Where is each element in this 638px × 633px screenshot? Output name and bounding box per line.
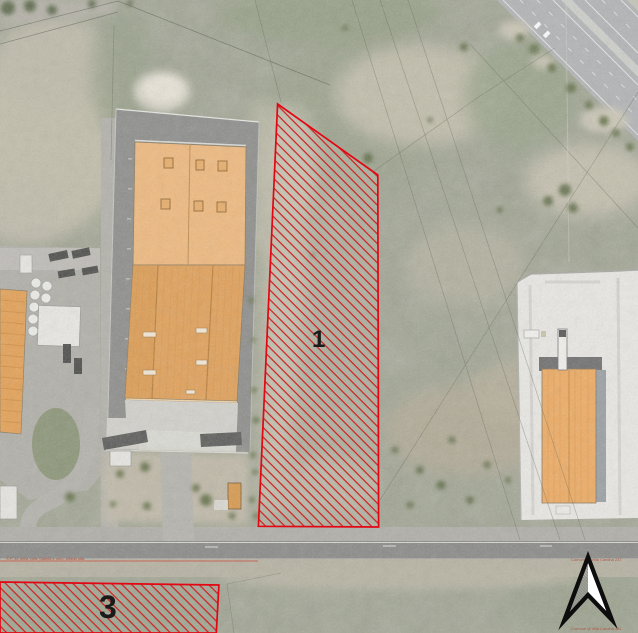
svg-text:1: 1	[312, 326, 325, 353]
svg-text:S.P. 34 della Valle Sabbia e r: S.P. 34 della Valle Sabbia e racc. strad…	[6, 556, 85, 561]
svg-text:3: 3	[99, 589, 117, 625]
svg-text:Comune di Villa Carcina 361: Comune di Villa Carcina 361	[571, 626, 622, 631]
svg-text:Comune di Villa Carcina 237: Comune di Villa Carcina 237	[571, 557, 622, 562]
